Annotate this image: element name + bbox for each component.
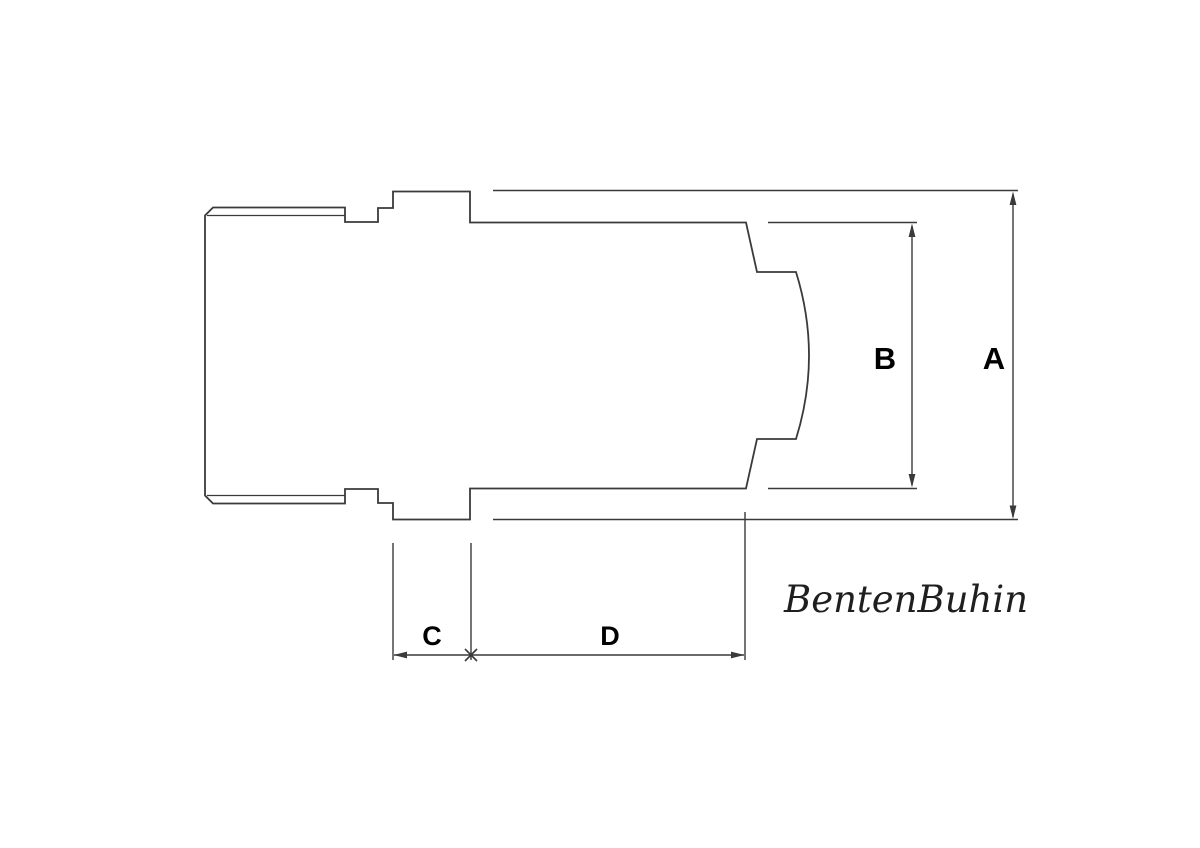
part-geometry-group [205, 192, 809, 520]
dim-a-arrow-up-icon [1010, 192, 1017, 206]
dim-b-arrow-up-icon [909, 224, 916, 238]
dimension-label-b: B [874, 341, 896, 376]
drawing-canvas: A B C D BentenBuhin [0, 0, 1200, 848]
dimension-label-d: D [600, 621, 620, 651]
part-outline [205, 192, 809, 520]
dim-a-arrow-down-icon [1010, 506, 1017, 520]
dim-d-arrow-right-icon [731, 652, 745, 659]
brand-logo-text: BentenBuhin [783, 578, 1028, 621]
dimension-label-a: A [983, 341, 1005, 376]
dim-c-arrow-left-icon [394, 652, 408, 659]
dim-b-arrow-down-icon [909, 474, 916, 488]
dimension-label-c: C [422, 621, 442, 651]
technical-drawing: A B C D BentenBuhin [0, 0, 1200, 848]
